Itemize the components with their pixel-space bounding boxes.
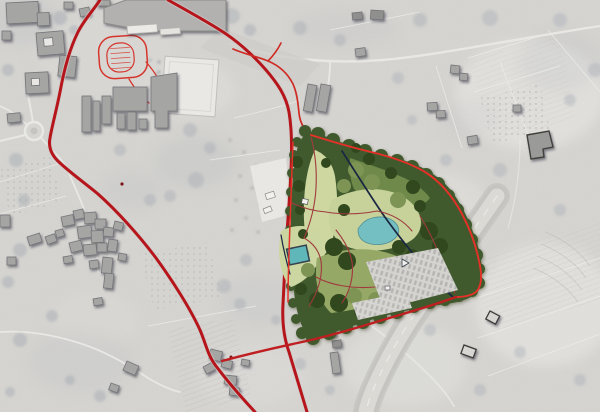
- tree-clump: [293, 180, 305, 192]
- warehouse-white: [127, 24, 157, 34]
- house: [332, 340, 342, 348]
- industrial-slab: [113, 87, 147, 111]
- canopy-blob: [441, 189, 455, 203]
- site-plan-map: [0, 0, 600, 412]
- building: [6, 1, 39, 24]
- tree-clump: [309, 292, 325, 308]
- industrial-bar: [117, 113, 125, 129]
- tree-clump: [363, 153, 375, 165]
- route-marker-dot: [120, 182, 123, 185]
- village-house: [83, 244, 97, 256]
- tree-clump: [414, 200, 426, 212]
- building: [7, 113, 21, 123]
- village-house: [103, 273, 114, 289]
- building: [64, 2, 73, 9]
- canopy-blob: [296, 327, 308, 339]
- house: [352, 12, 363, 20]
- village-house: [61, 215, 75, 227]
- shrub-blob: [337, 179, 351, 193]
- park-pavilion: [301, 198, 308, 204]
- canopy-blob: [288, 298, 298, 308]
- industrial-bar: [93, 101, 100, 131]
- pool-court: [287, 245, 310, 265]
- village-house: [77, 225, 93, 239]
- tree-clump: [321, 158, 331, 168]
- canopy-blob: [431, 177, 445, 191]
- village-house: [103, 227, 114, 237]
- house: [7, 257, 16, 265]
- tree-clump: [338, 252, 356, 270]
- village-house: [107, 239, 118, 252]
- shrub-blob: [364, 174, 380, 190]
- industrial-bar: [127, 112, 136, 130]
- industrial-bar: [82, 96, 91, 132]
- house: [355, 48, 366, 57]
- building: [2, 31, 11, 40]
- village-house: [113, 221, 124, 231]
- warehouse-white: [160, 28, 180, 35]
- canopy-blob: [291, 314, 301, 324]
- farm-house: [467, 135, 478, 145]
- village-house: [91, 230, 104, 243]
- house: [0, 215, 10, 227]
- hamlet-house: [241, 359, 250, 366]
- village-house: [89, 260, 99, 269]
- park-kiosk: [385, 286, 390, 290]
- farm-house: [459, 73, 468, 81]
- tree-clump: [295, 283, 307, 295]
- courtyard: [31, 78, 39, 85]
- farm-house: [450, 65, 460, 74]
- village-house: [97, 243, 107, 252]
- industrial-bar: [102, 96, 111, 124]
- village-house: [73, 209, 85, 220]
- shrub-blob: [390, 192, 406, 208]
- village-house: [118, 253, 127, 261]
- house: [370, 10, 384, 20]
- farm-house: [513, 105, 521, 112]
- map-canvas: [0, 0, 600, 412]
- canopy-blob: [299, 125, 311, 137]
- village-house: [63, 255, 73, 263]
- house: [93, 297, 103, 305]
- factory: [104, 0, 226, 31]
- building: [37, 12, 50, 26]
- farm-house: [436, 110, 445, 118]
- shrub-blob: [301, 263, 315, 277]
- farm-house: [427, 102, 438, 111]
- building: [139, 119, 147, 129]
- tree-clump: [325, 238, 343, 256]
- village-house: [101, 257, 113, 274]
- tree-clump: [385, 167, 397, 179]
- tree-clump: [406, 180, 420, 194]
- courtyard: [43, 38, 53, 47]
